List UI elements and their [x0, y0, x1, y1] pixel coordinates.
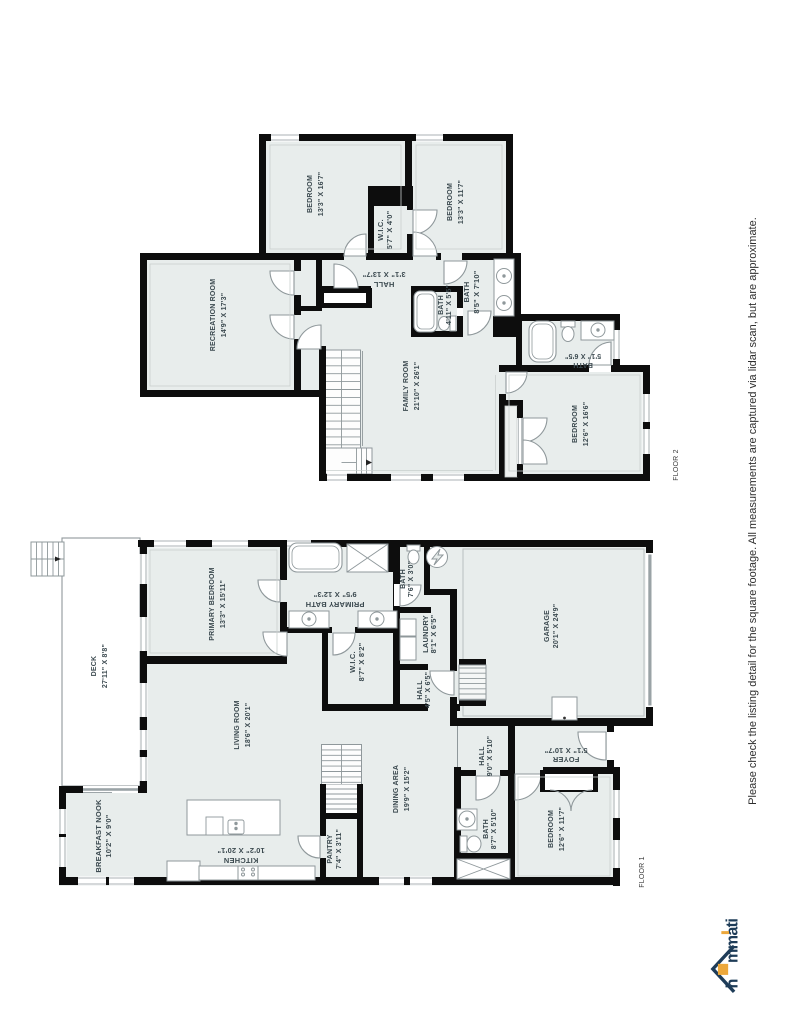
- svg-text:14'9" X 17'3": 14'9" X 17'3": [221, 293, 228, 337]
- svg-text:27'11" X 8'8": 27'11" X 8'8": [102, 644, 109, 688]
- svg-text:8'5" X 7'10": 8'5" X 7'10": [472, 270, 481, 313]
- svg-text:9'0" X 5'10": 9'0" X 5'10": [487, 736, 494, 776]
- svg-text:W.I.C.: W.I.C.: [376, 219, 385, 241]
- svg-text:5'1" X 10'7": 5'1" X 10'7": [544, 746, 587, 755]
- svg-text:3'1" X 13'7": 3'1" X 13'7": [362, 270, 405, 279]
- svg-text:10'2" X 20'1": 10'2" X 20'1": [217, 846, 265, 855]
- svg-text:13'3" X 15'11": 13'3" X 15'11": [220, 580, 227, 628]
- svg-text:KITCHEN: KITCHEN: [224, 856, 259, 865]
- svg-text:BATH: BATH: [483, 819, 490, 839]
- svg-text:GARAGE: GARAGE: [544, 610, 551, 642]
- svg-text:8'7" X 5'10": 8'7" X 5'10": [491, 809, 498, 849]
- svg-text:4'11" X 5'5": 4'11" X 5'5": [446, 285, 453, 325]
- svg-text:BATH: BATH: [438, 295, 445, 315]
- svg-text:W.I.C.: W.I.C.: [348, 651, 357, 673]
- svg-text:mmati: mmati: [724, 919, 742, 963]
- svg-text:h: h: [724, 979, 742, 989]
- svg-text:4'5" X 6'5": 4'5" X 6'5": [425, 672, 432, 708]
- svg-text:7'6" X 3'0": 7'6" X 3'0": [408, 561, 415, 597]
- svg-text:19'9" X 15'2": 19'9" X 15'2": [404, 767, 411, 811]
- svg-text:12'6" X 11'7": 12'6" X 11'7": [559, 807, 566, 851]
- svg-text:RECREATION ROOM: RECREATION ROOM: [210, 279, 217, 351]
- svg-text:5'1" X 6'5": 5'1" X 6'5": [565, 352, 601, 359]
- svg-text:DECK: DECK: [91, 656, 98, 677]
- svg-text:HALL: HALL: [479, 746, 486, 766]
- svg-text:8'7" X 8'2": 8'7" X 8'2": [357, 642, 366, 681]
- svg-text:12'6" X 16'6": 12'6" X 16'6": [583, 402, 590, 446]
- svg-text:BEDROOM: BEDROOM: [548, 810, 555, 848]
- svg-text:FLOOR 2: FLOOR 2: [673, 449, 680, 480]
- svg-text:PRIMARY BEDROOM: PRIMARY BEDROOM: [209, 567, 216, 640]
- svg-text:8'1" X 6'5": 8'1" X 6'5": [429, 614, 438, 653]
- svg-text:FOYER: FOYER: [552, 755, 579, 764]
- svg-text:HALL: HALL: [417, 680, 424, 700]
- svg-text:10'2" X 9'0": 10'2" X 9'0": [104, 814, 113, 857]
- svg-text:BATH: BATH: [462, 281, 471, 302]
- svg-text:BEDROOM: BEDROOM: [307, 175, 314, 213]
- svg-text:HALL: HALL: [373, 280, 394, 289]
- svg-text:BATH: BATH: [400, 569, 407, 589]
- svg-text:BEDROOM: BEDROOM: [447, 183, 454, 221]
- svg-text:DINING AREA: DINING AREA: [393, 765, 400, 813]
- svg-text:LIVING ROOM: LIVING ROOM: [234, 700, 241, 749]
- svg-text:5'7" X 4'0": 5'7" X 4'0": [385, 210, 394, 249]
- svg-text:BREAKFAST NOOK: BREAKFAST NOOK: [94, 799, 103, 873]
- svg-text:PRIMARY BATH: PRIMARY BATH: [306, 600, 365, 609]
- svg-text:FLOOR 1: FLOOR 1: [639, 856, 646, 887]
- svg-text:FAMILY ROOM: FAMILY ROOM: [403, 361, 410, 412]
- svg-text:PANTRY: PANTRY: [327, 834, 334, 863]
- svg-text:Please check the listing detai: Please check the listing detail for the …: [747, 217, 759, 805]
- svg-text:13'3" X 16'7": 13'3" X 16'7": [318, 172, 325, 216]
- svg-text:BATH: BATH: [573, 361, 593, 368]
- svg-text:9'5" X 12'3": 9'5" X 12'3": [313, 590, 356, 599]
- svg-text:18'6" X 20'1": 18'6" X 20'1": [245, 703, 252, 747]
- svg-text:20'1" X 24'9": 20'1" X 24'9": [553, 604, 560, 648]
- svg-text:13'3" X 11'7": 13'3" X 11'7": [458, 180, 465, 224]
- svg-text:21'10" X 26'1": 21'10" X 26'1": [414, 362, 421, 411]
- svg-text:BEDROOM: BEDROOM: [572, 405, 579, 443]
- svg-text:7'4" X 3'11": 7'4" X 3'11": [336, 829, 343, 869]
